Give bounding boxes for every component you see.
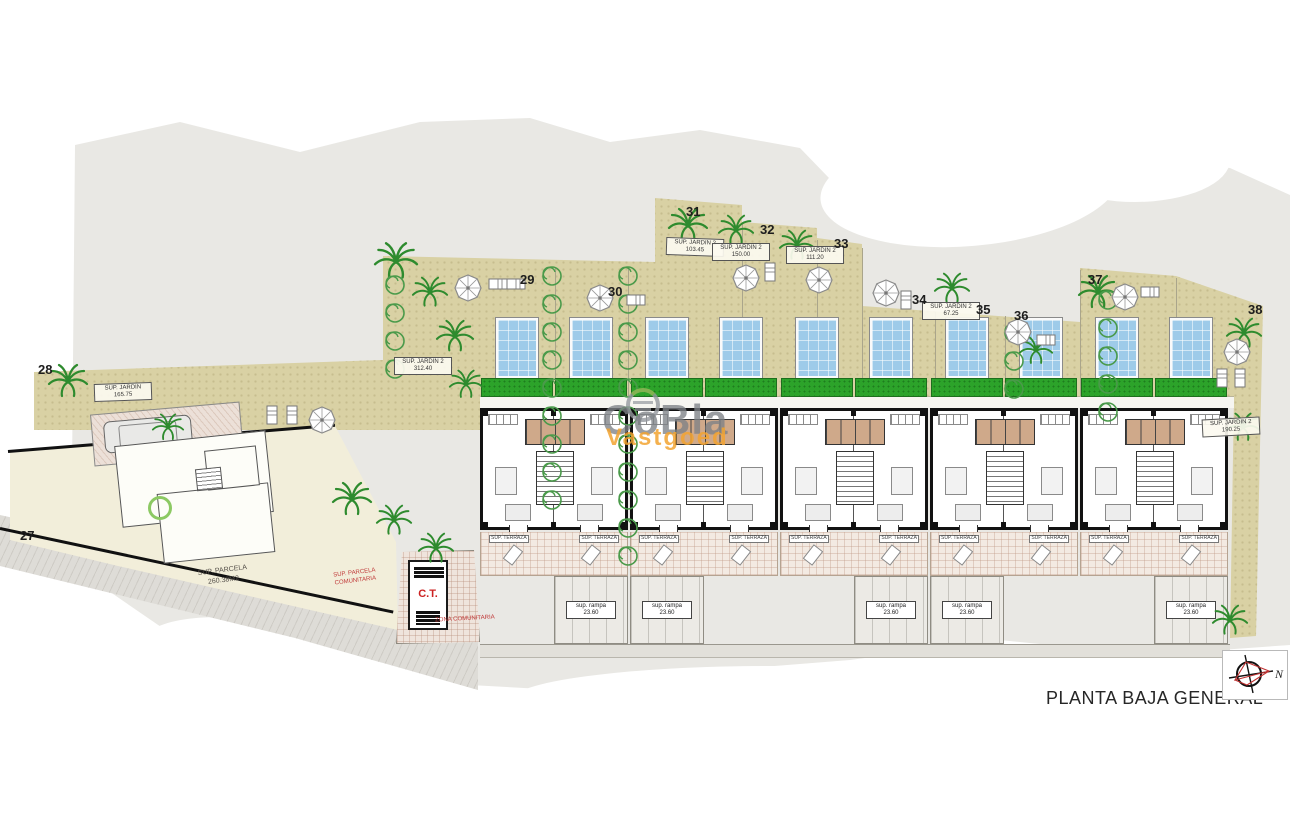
dining-table [1105,504,1131,521]
sofa [1095,467,1117,495]
wall-pillar [933,522,938,527]
terrace-label: SUP. TERRAZA [939,535,979,543]
grass-strip [705,378,777,397]
plot-number: 29 [520,272,534,287]
sofa [1041,467,1063,495]
strip-label: sup. rampa23.60 [566,601,616,619]
ramp-strip: sup. rampa23.60 [554,576,628,644]
wall-pillar [933,411,938,416]
wall-pillar [633,522,638,527]
sun-lounger [731,544,752,566]
dining-table [877,504,903,521]
area-label: SUP. JARDIN 2 312.40 [394,357,452,375]
terrace: SUP. TERRAZASUP. TERRAZA [480,532,628,576]
dining-table [655,504,681,521]
swimming-pool [1020,318,1062,378]
strip-label: sup. rampa23.60 [1166,601,1216,619]
sun-lounger [881,544,902,566]
sofa [795,467,817,495]
grass-strip [481,378,553,397]
terrace-label: SUP. TERRAZA [879,535,919,543]
terrace: SUP. TERRAZASUP. TERRAZA [930,532,1078,576]
plot-number: 36 [1014,308,1028,323]
strip-label: sup. rampa23.60 [866,601,916,619]
terrace: SUP. TERRAZASUP. TERRAZA [630,532,778,576]
grass-strip [1155,378,1227,397]
sun-lounger [653,544,674,566]
terrace-label: SUP. TERRAZA [639,535,679,543]
wall-pillar [701,522,706,527]
plot-number: 28 [38,362,52,377]
wall-pillar [620,522,625,527]
sofa [591,467,613,495]
grass-strip [1005,378,1077,397]
wall-pillar [770,411,775,416]
ramp-strip: sup. rampa23.60 [630,576,704,644]
grass-strip [1081,378,1153,397]
swimming-pool [796,318,838,378]
terrace-label: SUP. TERRAZA [789,535,829,543]
plot-number: 33 [834,236,848,251]
area-label-value: 67.25 [923,311,979,318]
wall-pillar [1070,522,1075,527]
stairs [1136,451,1174,505]
area-label-text: SUP. JARDIN 2 [395,359,451,366]
bathroom [825,419,885,445]
area-label: SUP. JARDIN 2 67.25 [922,302,980,320]
kitchen-counter [890,414,920,425]
bathroom [975,419,1035,445]
villa-pair [780,408,928,530]
kitchen-counter [938,414,968,425]
swimming-pool [870,318,912,378]
wall-pillar [851,411,856,416]
swimming-pool [646,318,688,378]
area-label: SUP. JARDIN 2 190.25 [1202,416,1261,437]
sofa [645,467,667,495]
plot-number: 37 [1088,272,1102,287]
sofa [891,467,913,495]
swimming-pool [1170,318,1212,378]
wall-pillar [1083,522,1088,527]
ramp-strip: sup. rampa23.60 [930,576,1004,644]
strip-label: sup. rampa23.60 [642,601,692,619]
plot-number: 31 [686,204,700,219]
kitchen-counter [488,414,518,425]
dining-table [577,504,603,521]
ramp-strip: sup. rampa23.60 [1154,576,1228,644]
area-label-value: 150.00 [713,252,769,259]
kitchen-counter [788,414,818,425]
stairs [686,451,724,505]
wall-pillar [783,522,788,527]
sofa [945,467,967,495]
existing-house-wing [157,482,276,563]
wall-pillar [1151,522,1156,527]
wall-pillar [770,522,775,527]
sun-lounger [803,544,824,566]
terrace: SUP. TERRAZASUP. TERRAZA [780,532,928,576]
sun-lounger [581,544,602,566]
walkway-path [480,396,1234,408]
transformer-label: C.T. [410,588,446,600]
green-circle [148,496,172,520]
wall-pillar [1001,411,1006,416]
dining-table [955,504,981,521]
wall-pillar [1001,522,1006,527]
plot-number: 32 [760,222,774,237]
villa-pair [930,408,1078,530]
plot-number: 35 [976,302,990,317]
sun-lounger [1031,544,1052,566]
stairs [836,451,874,505]
grass-strip [555,378,627,397]
area-label-value: 111.20 [787,255,843,262]
sun-lounger [503,544,524,566]
plot-boundary-line [862,248,863,396]
sofa [495,467,517,495]
wall-pillar [851,522,856,527]
stairs [986,451,1024,505]
dining-table [1177,504,1203,521]
wall-pillar [783,411,788,416]
sofa [1191,467,1213,495]
wall-pillar [551,411,556,416]
plot-number: 27 [20,528,34,543]
bathroom [1125,419,1185,445]
area-label-text: SUP. JARDIN 2 [713,245,769,252]
terrace-label: SUP. TERRAZA [729,535,769,543]
swimming-pool [570,318,612,378]
plot-number: 34 [912,292,926,307]
cloud-shape [1040,118,1230,202]
wall-pillar [1151,411,1156,416]
dining-table [505,504,531,521]
ramp-strip: sup. rampa23.60 [854,576,928,644]
dining-table [805,504,831,521]
area-label-text: SUP. JARDIN 2 [923,304,979,311]
north-label: N [1275,667,1283,682]
plot-number: 38 [1248,302,1262,317]
sun-lounger [1103,544,1124,566]
sun-lounger [1181,544,1202,566]
rear-lane [480,644,1230,658]
plot-boundary-line [628,268,629,396]
wall-pillar [1070,411,1075,416]
grass-strip [855,378,927,397]
area-label-value: 312.40 [395,366,451,373]
stairs [536,451,574,505]
bathroom [525,419,585,445]
sun-lounger [953,544,974,566]
stairs [195,467,223,492]
cloud-shape [510,666,1030,736]
wall-pillar [920,522,925,527]
kitchen-counter [1040,414,1070,425]
plot-boundary-line [555,268,556,396]
plot-number: 30 [608,284,622,299]
sofa [741,467,763,495]
swimming-pool [946,318,988,378]
grass-strip [931,378,1003,397]
swimming-pool [1096,318,1138,378]
compass-box: N [1222,650,1288,700]
wall-pillar [1083,411,1088,416]
brand-subname: Vastgoed [606,424,729,452]
terrace-label: SUP. TERRAZA [1089,535,1129,543]
wall-pillar [1220,522,1225,527]
strip-label: sup. rampa23.60 [942,601,992,619]
swimming-pool [720,318,762,378]
wall-pillar [483,522,488,527]
area-label-value: 165.75 [95,391,151,400]
area-label: SUP. JARDIN 165.75 [94,382,153,402]
terrace-label: SUP. TERRAZA [489,535,529,543]
wall-pillar [1220,411,1225,416]
dining-table [727,504,753,521]
wall-pillar [483,411,488,416]
area-label: SUP. JARDIN 2 150.00 [712,243,770,261]
kitchen-counter [1088,414,1118,425]
dining-table [1027,504,1053,521]
terrace: SUP. TERRAZASUP. TERRAZA [1080,532,1228,576]
kitchen-counter [740,414,770,425]
wall-pillar [920,411,925,416]
grass-strip [781,378,853,397]
wall-pillar [551,522,556,527]
swimming-pool [496,318,538,378]
terrace-label: SUP. TERRAZA [579,535,619,543]
terrace-label: SUP. TERRAZA [1029,535,1069,543]
terrace-label: SUP. TERRAZA [1179,535,1219,543]
vent-grill-icon [414,566,444,579]
